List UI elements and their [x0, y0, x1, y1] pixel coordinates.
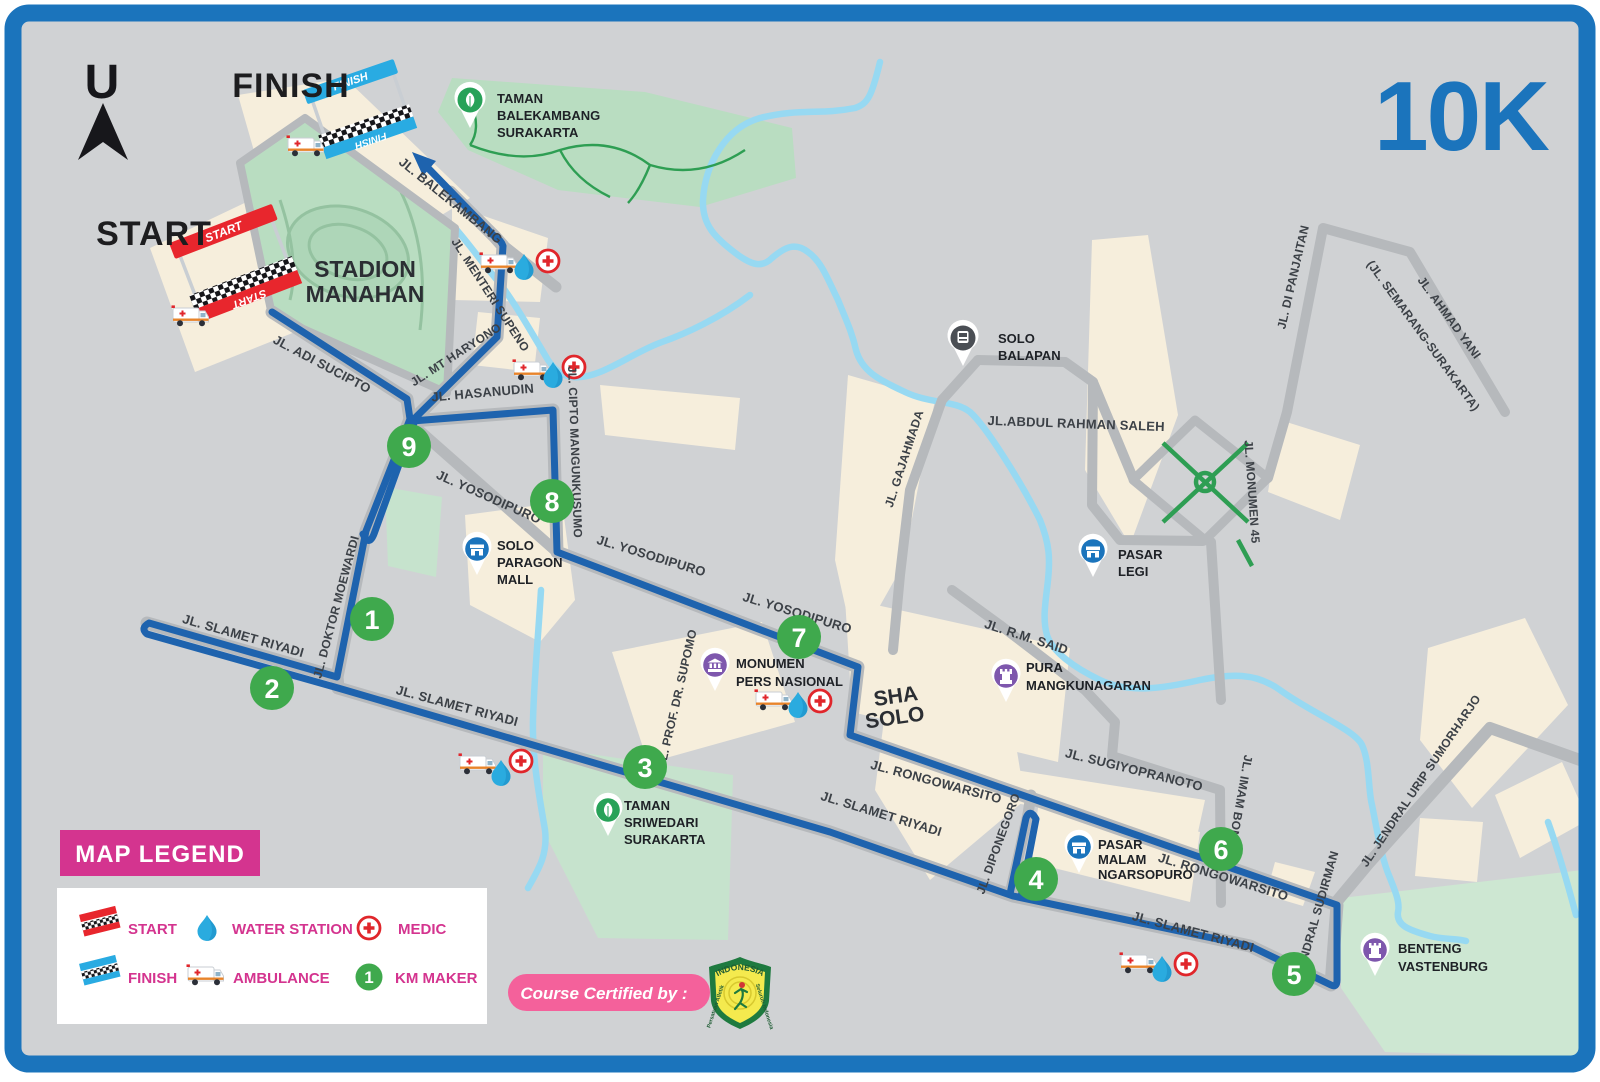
km-marker-9: 9 — [387, 424, 431, 468]
legend-start-label: START — [128, 921, 177, 938]
poi-label: SURAKARTA — [497, 125, 579, 140]
poi-label: TAMAN — [624, 798, 670, 813]
stadium-label-2: MANAHAN — [306, 281, 425, 307]
legend-finish-label: FINISH — [128, 970, 177, 987]
km-marker-3: 3 — [623, 745, 667, 789]
km-marker-6: 6 — [1199, 827, 1243, 871]
poi-label: TAMAN — [497, 91, 543, 106]
legend-km-label: KM MAKER — [395, 970, 478, 987]
distance-title: 10K — [1374, 61, 1549, 171]
race-map-poster: START START FINISH FINISH — [0, 0, 1600, 1077]
medic-icon — [537, 250, 559, 272]
legend-km-icon: 1 — [356, 964, 383, 991]
map-canvas: START START FINISH FINISH — [0, 0, 1600, 1077]
poi-label: PERS NASIONAL — [736, 674, 843, 689]
medic-icon — [510, 750, 532, 772]
poi-label: SRIWEDARI — [624, 815, 698, 830]
poi-label: LEGI — [1118, 564, 1148, 579]
poi-label: MANGKUNAGARAN — [1026, 678, 1151, 693]
legend-ambulance-label: AMBULANCE — [233, 970, 330, 987]
poi-label: PASAR — [1098, 837, 1143, 852]
poi-label: SURAKARTA — [624, 832, 706, 847]
km-marker-2: 2 — [250, 666, 294, 710]
legend-title: MAP LEGEND — [75, 841, 245, 868]
legend-medic-icon — [358, 917, 380, 939]
km-marker-7: 7 — [777, 615, 821, 659]
certified-label: Course Certified by : — [520, 984, 687, 1003]
legend-water-label: WATER STATION — [232, 921, 353, 938]
svg-text:6: 6 — [1213, 835, 1228, 865]
poi-label: BENTENG — [1398, 941, 1462, 956]
svg-text:1: 1 — [364, 605, 379, 635]
km-marker-4: 4 — [1014, 857, 1058, 901]
svg-text:8: 8 — [544, 487, 559, 517]
poi-label: MALL — [497, 572, 533, 587]
svg-text:3: 3 — [637, 753, 652, 783]
start-title: START — [96, 215, 212, 253]
poi-label: MALAM — [1098, 852, 1146, 867]
svg-text:4: 4 — [1028, 865, 1043, 895]
km-marker-5: 5 — [1272, 952, 1316, 996]
km-marker-8: 8 — [530, 479, 574, 523]
legend-box — [57, 888, 487, 1024]
svg-text:7: 7 — [791, 623, 806, 653]
svg-text:2: 2 — [264, 674, 279, 704]
stadium-label-1: STADION — [314, 256, 416, 282]
poi-label: BALAPAN — [998, 348, 1061, 363]
poi-label: PURA — [1026, 660, 1063, 675]
svg-text:5: 5 — [1286, 960, 1301, 990]
medic-icon — [1175, 953, 1197, 975]
legend-medic-label: MEDIC — [398, 921, 447, 938]
svg-text:1: 1 — [364, 968, 373, 987]
compass-letter: U — [85, 56, 120, 109]
svg-text:9: 9 — [401, 432, 416, 462]
poi-label: SOLO — [497, 538, 534, 553]
km-marker-1: 1 — [350, 597, 394, 641]
poi-label: PASAR — [1118, 547, 1163, 562]
poi-label: VASTENBURG — [1398, 959, 1488, 974]
medic-icon — [809, 690, 831, 712]
poi-label: PARAGON — [497, 555, 562, 570]
poi-label: BALEKAMBANG — [497, 108, 600, 123]
finish-title: FINISH — [232, 67, 349, 105]
poi-label: SOLO — [998, 331, 1035, 346]
